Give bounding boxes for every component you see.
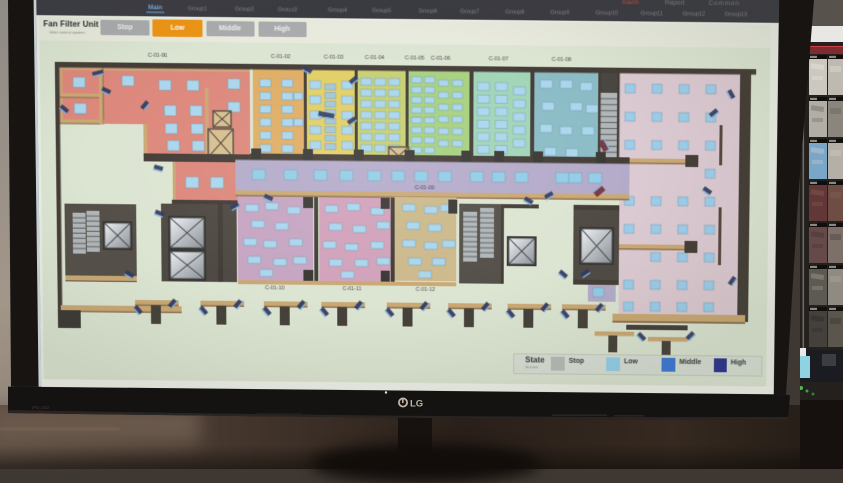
svg-text:LG: LG — [410, 399, 423, 410]
svg-text:IPS LED: IPS LED — [32, 405, 50, 410]
